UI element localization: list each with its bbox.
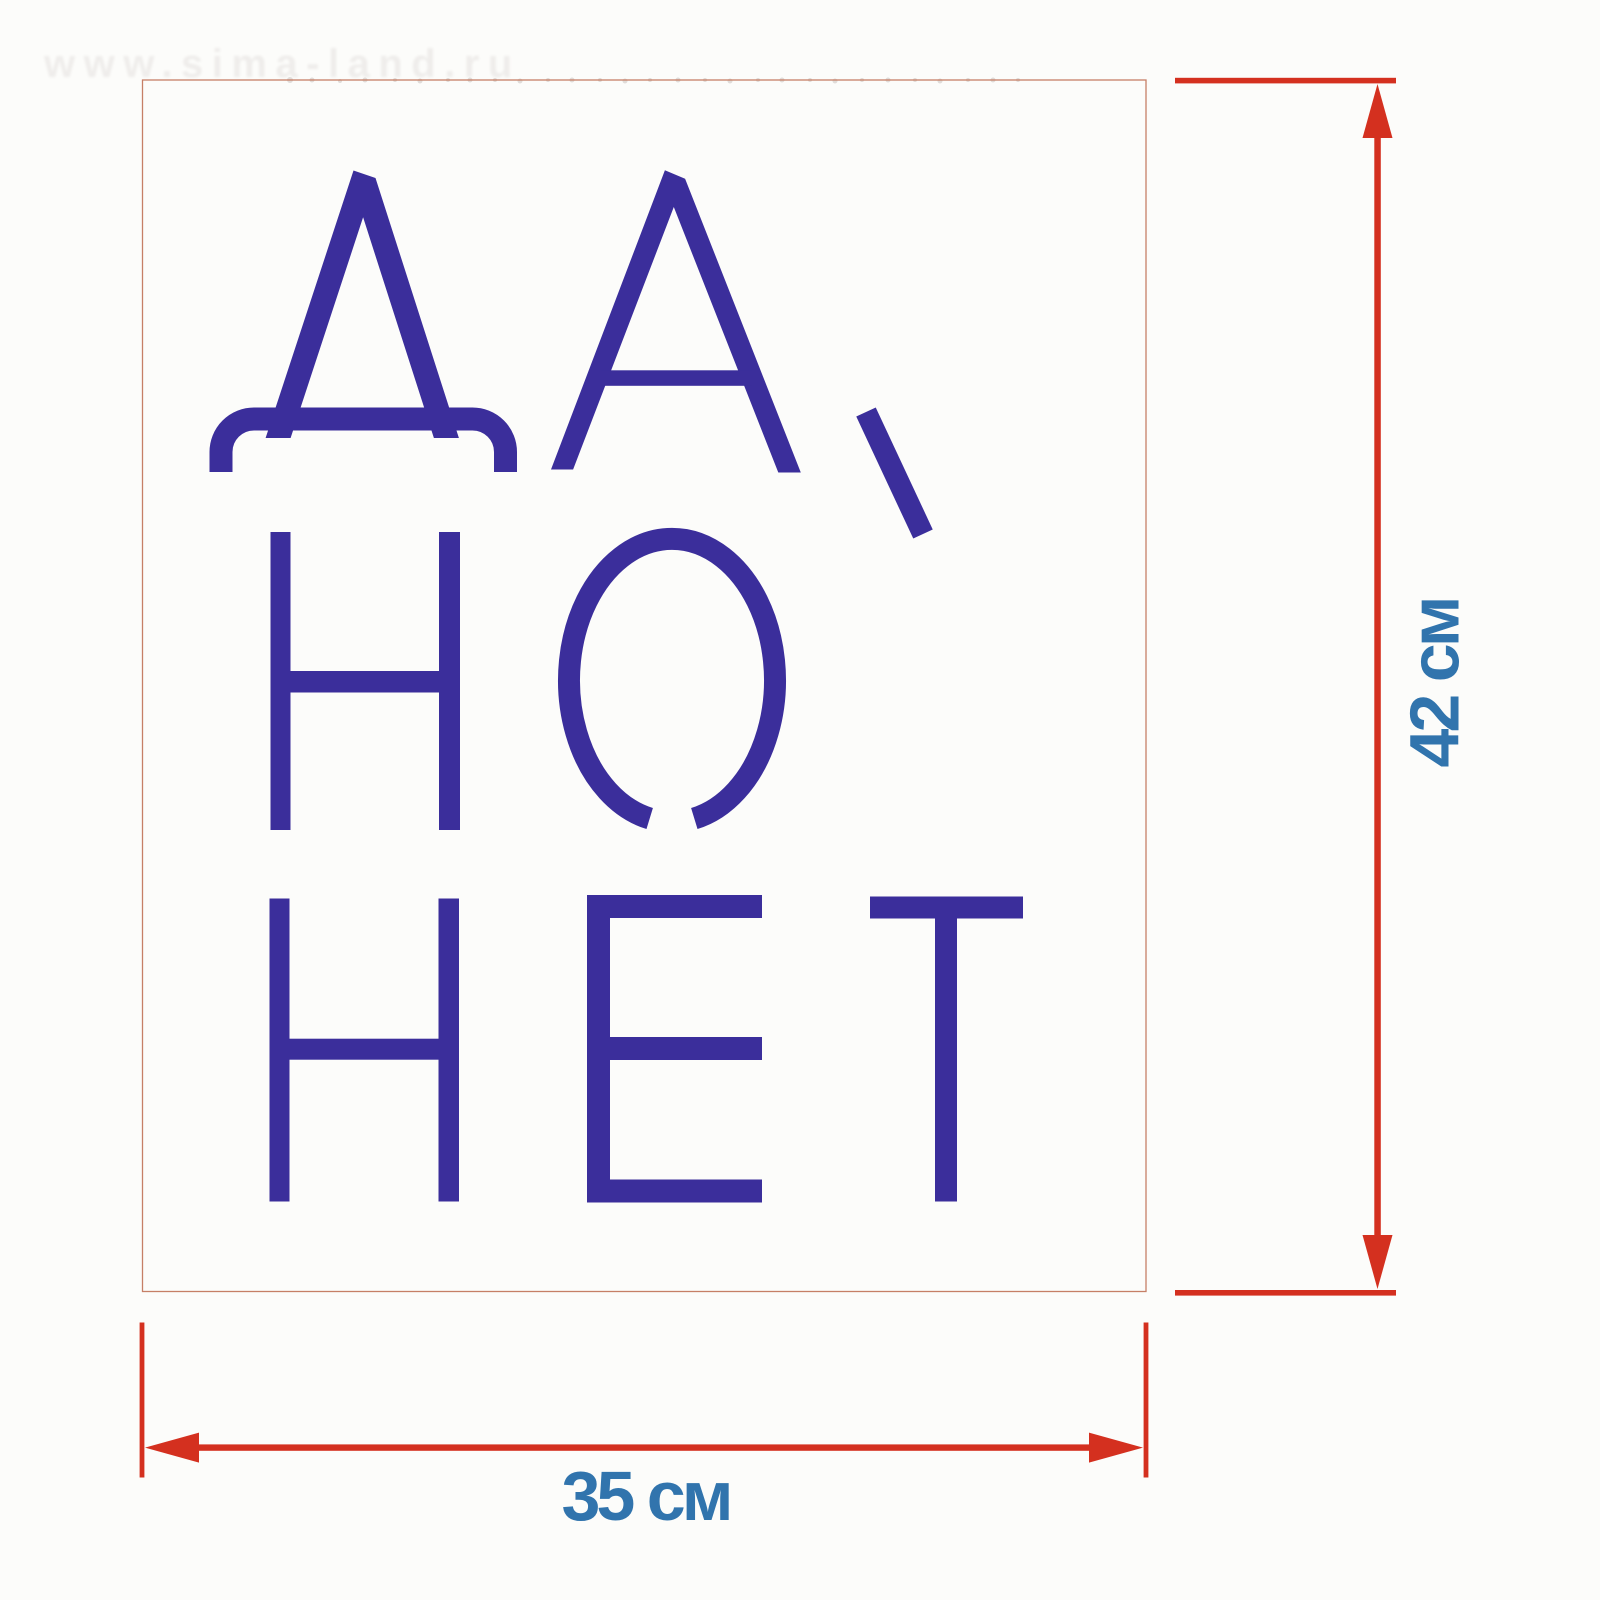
svg-text:42 см: 42 см [1396, 599, 1474, 767]
svg-text:35 см: 35 см [561, 1457, 729, 1535]
